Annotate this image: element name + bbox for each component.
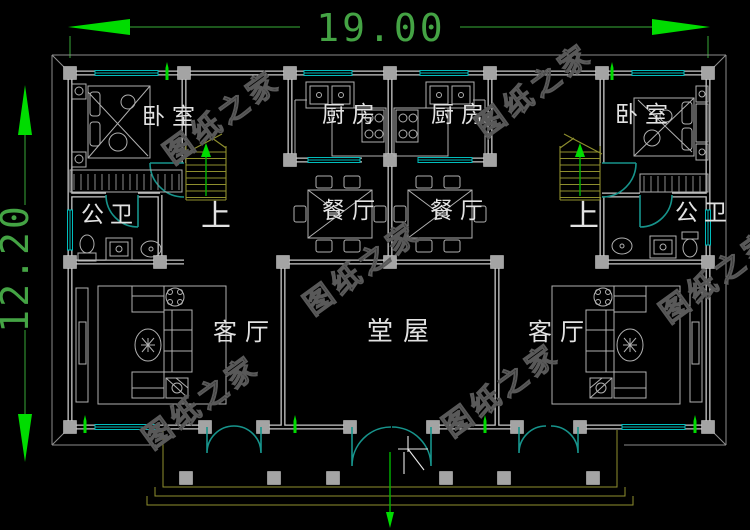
stair-up-arrow-right-icon	[575, 143, 585, 157]
label-stair-right: 上	[569, 199, 599, 234]
dim-arrow-right-icon	[652, 19, 710, 35]
entry-direction-arrow	[386, 452, 394, 528]
dim-arrow-left-icon	[68, 19, 130, 35]
bath-right-fixtures	[612, 232, 698, 258]
bed-left	[72, 84, 150, 167]
label-hall: 堂屋	[367, 317, 439, 347]
bedroom-right-door	[602, 163, 636, 197]
height-dimension: 12.20	[0, 203, 37, 332]
floor-plan-canvas: 19.00 12.20	[0, 0, 750, 530]
label-bath-right: 公卫	[675, 200, 733, 226]
label-bedroom-right: 卧室	[615, 102, 675, 128]
entry-door-right	[519, 426, 578, 453]
dimension-left: 12.20	[0, 85, 37, 462]
stair-right	[560, 134, 602, 200]
cad-floor-plan: 19.00 12.20	[0, 0, 750, 530]
bath-left-fixtures	[78, 235, 161, 261]
entry-door-left	[207, 426, 261, 453]
watermarks: 图纸之家 图纸之家 图纸之家 图纸之家 图纸之家 图纸之家	[136, 36, 750, 455]
dim-arrow-down-icon	[18, 414, 32, 462]
label-bath-left: 公卫	[81, 202, 139, 228]
bath-right-door	[640, 195, 672, 227]
watermark-3: 图纸之家	[297, 214, 427, 321]
watermark-4: 图纸之家	[136, 348, 266, 455]
label-kitchen-left: 厨房	[322, 102, 382, 128]
label-dining-left: 餐厅	[322, 198, 382, 224]
width-dimension: 19.00	[316, 6, 445, 50]
entry-door-center	[352, 427, 431, 466]
label-living-left: 客厅	[213, 318, 277, 346]
entry-arrow-icon	[386, 512, 394, 528]
closet-right	[640, 174, 708, 192]
label-dining-right: 餐厅	[430, 198, 490, 224]
dim-arrow-up-icon	[18, 85, 32, 135]
label-stair-left: 上	[201, 199, 231, 234]
dimension-top: 19.00	[68, 6, 710, 58]
closet-left	[70, 170, 182, 192]
